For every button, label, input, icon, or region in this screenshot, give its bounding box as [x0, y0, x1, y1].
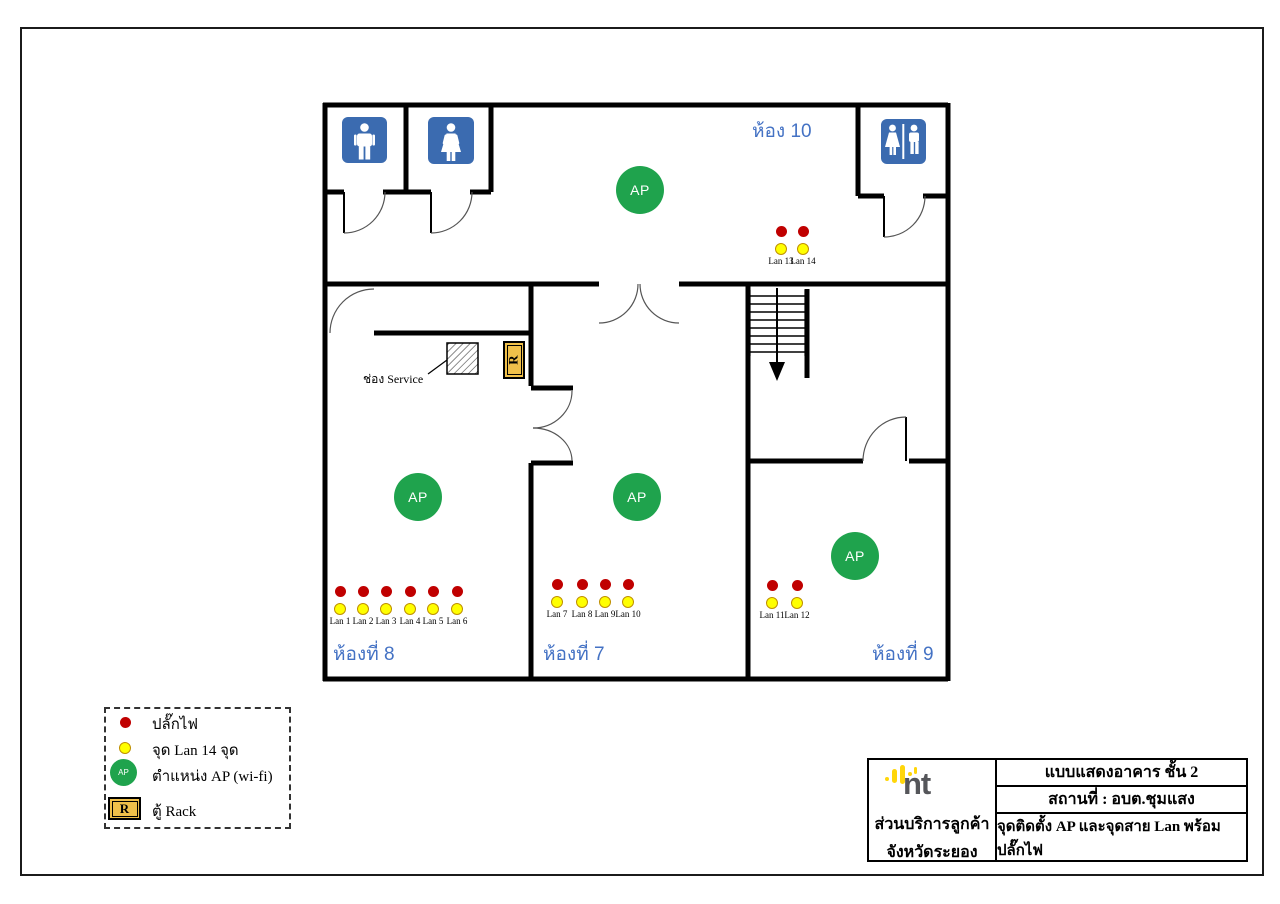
ap-marker-text: AP: [630, 182, 650, 198]
power-plug-dot: [767, 580, 778, 591]
room-label-8: ห้องที่ 8: [333, 639, 395, 669]
power-plug-dot: [381, 586, 392, 597]
lan-dot: [599, 596, 611, 608]
ap-marker-text: AP: [845, 548, 865, 564]
lan-point-label: Lan 6: [442, 616, 472, 626]
power-plug-dot: [577, 579, 588, 590]
rack-box: R: [503, 341, 525, 379]
lan-dot: [797, 243, 809, 255]
legend-ap-marker: AP: [110, 759, 137, 786]
drawing-title: แบบแสดงอาคาร ชั้น 2: [997, 760, 1246, 787]
legend-rack-letter: R: [120, 801, 129, 817]
ap-marker-text: AP: [627, 489, 647, 505]
room-label-9: ห้องที่ 9: [872, 639, 934, 669]
ap-marker-room7: AP: [613, 473, 661, 521]
stairs: [750, 288, 805, 381]
floor-plan-page: AP AP AP AP R ช่อง Service ห้อง 10 ห้องท…: [0, 0, 1280, 904]
lan-point-label: Lan 12: [782, 610, 812, 620]
room-label-10: ห้อง 10: [752, 116, 812, 146]
power-plug-dot: [776, 226, 787, 237]
lan-point: Lan 6: [442, 586, 472, 626]
power-plug-dot: [428, 586, 439, 597]
drawing-location: สถานที่ : อบต.ชุมแสง: [997, 787, 1246, 814]
power-plug-dot: [600, 579, 611, 590]
title-block-org-cell: nt ส่วนบริการลูกค้า จังหวัดระยอง: [869, 760, 997, 860]
lan-dot: [334, 603, 346, 615]
service-opening-label: ช่อง Service: [363, 370, 423, 389]
nt-logo-mark: [892, 769, 897, 783]
title-block: nt ส่วนบริการลูกค้า จังหวัดระยอง แบบแสดง…: [867, 758, 1248, 862]
lan-dot: [576, 596, 588, 608]
female-restroom-icon: [428, 117, 474, 164]
legend-ap-text: AP: [118, 768, 129, 777]
lan-point-label: Lan 14: [788, 256, 818, 266]
lan-point-label: Lan 10: [613, 609, 643, 619]
power-plug-dot: [623, 579, 634, 590]
power-plug-dot: [405, 586, 416, 597]
ap-marker-text: AP: [408, 489, 428, 505]
lan-dot: [451, 603, 463, 615]
legend-ap-label: ตำแหน่ง AP (wi-fi): [152, 764, 273, 788]
lan-dot: [551, 596, 563, 608]
legend-lan-dot: [119, 742, 131, 754]
lan-point: Lan 10: [613, 579, 643, 619]
org-line-1: ส่วนบริการลูกค้า: [869, 812, 995, 837]
power-plug-dot: [358, 586, 369, 597]
lan-dot: [357, 603, 369, 615]
nt-logo-text: nt: [903, 766, 930, 802]
lan-point: Lan 14: [788, 226, 818, 266]
org-line-2: จังหวัดระยอง: [869, 840, 995, 865]
lan-dot: [766, 597, 778, 609]
ap-marker-room10: AP: [616, 166, 664, 214]
power-plug-dot: [798, 226, 809, 237]
legend-plug-dot: [120, 717, 131, 728]
unisex-restroom-icon: [881, 119, 926, 164]
service-opening: [428, 343, 478, 374]
legend-rack-box: R: [108, 797, 141, 820]
drawing-description: จุดติดตั้ง AP และจุดสาย Lan พร้อมปลั๊กไฟ: [997, 814, 1246, 862]
lan-dot: [622, 596, 634, 608]
legend-rack-label: ตู้ Rack: [152, 799, 196, 823]
door-leaves: [344, 192, 906, 461]
room-label-7: ห้องที่ 7: [543, 639, 605, 669]
lan-dot: [775, 243, 787, 255]
nt-logo-mark: [885, 777, 889, 781]
door-arcs: [330, 192, 925, 461]
lan-dot: [404, 603, 416, 615]
power-plug-dot: [552, 579, 563, 590]
lan-dot: [380, 603, 392, 615]
rack-letter: R: [506, 355, 522, 364]
title-block-rows: แบบแสดงอาคาร ชั้น 2 สถานที่ : อบต.ชุมแสง…: [997, 760, 1246, 860]
legend-lan-label: จุด Lan 14 จุด: [152, 738, 239, 762]
ap-marker-room8: AP: [394, 473, 442, 521]
nt-logo: nt: [883, 764, 979, 808]
power-plug-dot: [335, 586, 346, 597]
male-restroom-icon: [342, 117, 387, 163]
stairs-down-arrow: [769, 362, 785, 381]
power-plug-dot: [792, 580, 803, 591]
lan-point: Lan 12: [782, 580, 812, 620]
power-plug-dot: [452, 586, 463, 597]
lan-dot: [427, 603, 439, 615]
legend-plug-label: ปลั๊กไฟ: [152, 712, 198, 736]
lan-dot: [791, 597, 803, 609]
ap-marker-room9: AP: [831, 532, 879, 580]
